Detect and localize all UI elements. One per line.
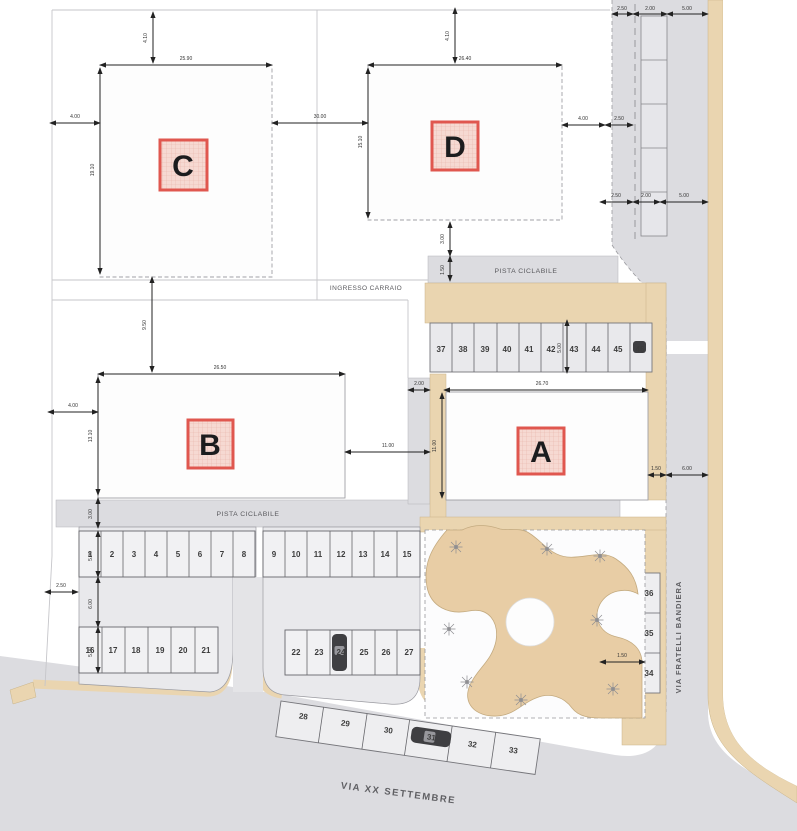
parking-stall-number: 19 bbox=[156, 646, 165, 655]
dimension-label: 3.00 bbox=[440, 234, 446, 244]
dimension-label: 4.10 bbox=[143, 33, 149, 43]
dimension-label: 2.00 bbox=[645, 6, 655, 12]
parking-stall-number: 30 bbox=[383, 725, 394, 735]
parking-row-1-8 bbox=[79, 531, 255, 577]
parking-stall-number: 22 bbox=[292, 648, 301, 657]
parking-stall-number: 15 bbox=[403, 550, 412, 559]
dimension-label: 26.70 bbox=[536, 381, 549, 387]
bike-path-label-north: PISTA CICLABILE bbox=[495, 268, 558, 275]
building-a-label: A bbox=[530, 436, 552, 469]
parking-stall-number: 11 bbox=[314, 550, 323, 559]
dimension-label: 1.50 bbox=[440, 265, 446, 275]
dimension-label: 2.00 bbox=[414, 381, 424, 387]
dimension-label: 4.10 bbox=[445, 31, 451, 41]
parking-stall-number: 36 bbox=[645, 589, 654, 598]
dimension-label: 13.10 bbox=[88, 430, 94, 443]
dimension-label: 2.50 bbox=[56, 583, 66, 589]
parking-stall-number: 8 bbox=[242, 550, 247, 559]
parking-stall-number: 24 bbox=[337, 648, 346, 657]
parking-stall-number: 41 bbox=[525, 345, 534, 354]
parking-stall-number: 31 bbox=[426, 732, 437, 742]
dimension-label: 5.00 bbox=[682, 6, 692, 12]
dimension-label: 11.00 bbox=[432, 440, 438, 452]
dimension-label: 5.00 bbox=[557, 343, 563, 353]
parking-stall-number: 45 bbox=[614, 345, 623, 354]
dimension-label: 9.50 bbox=[142, 320, 148, 330]
parking-stall-number: 23 bbox=[315, 648, 324, 657]
parking-stall-number: 9 bbox=[272, 550, 277, 559]
dimension-label: 6.00 bbox=[682, 466, 692, 472]
bike-path-label-south: PISTA CICLABILE bbox=[217, 511, 280, 518]
parking-stall-number: 35 bbox=[645, 629, 654, 638]
roadside-stalls bbox=[641, 16, 667, 236]
dimension-label: 25.90 bbox=[180, 56, 193, 62]
dimension-label: 26.40 bbox=[459, 56, 472, 62]
parking-stall-number: 12 bbox=[337, 550, 346, 559]
parking-stall-number: 27 bbox=[405, 648, 414, 657]
driveway-entrance-label: INGRESSO CARRAIO bbox=[330, 285, 402, 292]
parking-stall-number: 34 bbox=[645, 669, 654, 678]
parking-stall-number: 20 bbox=[179, 646, 188, 655]
parking-stall-number: 40 bbox=[503, 345, 512, 354]
parking-stall-number: 7 bbox=[220, 550, 225, 559]
playground bbox=[425, 525, 645, 718]
site-plan-drawing: C D B A 4.1025.904.0019.109.5030.004.102… bbox=[0, 0, 797, 831]
parking-stall-number: 21 bbox=[202, 646, 211, 655]
dimension-label: 2.50 bbox=[611, 193, 621, 199]
parking-stall-number: 26 bbox=[382, 648, 391, 657]
dimension-label: 2.50 bbox=[617, 6, 627, 12]
parking-stall-number: 17 bbox=[109, 646, 118, 655]
parking-row-22-27 bbox=[285, 630, 420, 675]
driveway-between-islands bbox=[233, 577, 263, 692]
dimension-label: 2.00 bbox=[641, 193, 651, 199]
parking-stall-number: 1 bbox=[88, 550, 93, 559]
parking-stall-number: 18 bbox=[132, 646, 141, 655]
building-b-label: B bbox=[199, 429, 221, 462]
bike-path-west-of-a bbox=[408, 378, 430, 504]
parking-stall-number: 5 bbox=[176, 550, 181, 559]
dimension-label: 15.10 bbox=[358, 136, 364, 149]
parking-stall-number: 3 bbox=[132, 550, 137, 559]
dimension-label: 6.00 bbox=[88, 599, 94, 609]
building-d-label: D bbox=[444, 131, 466, 164]
parking-stall-number: 33 bbox=[508, 745, 519, 755]
parking-row-16-21 bbox=[79, 627, 218, 673]
parking-stall-number: 38 bbox=[459, 345, 468, 354]
offplan-mask bbox=[723, 0, 797, 786]
parking-stall-number: 2 bbox=[110, 550, 115, 559]
parking-stall-number: 10 bbox=[292, 550, 301, 559]
parking-stall-number: 28 bbox=[298, 711, 309, 721]
parking-stall-number: 39 bbox=[481, 345, 490, 354]
path-above-row-37-46 bbox=[425, 283, 666, 323]
parking-stall-number: 29 bbox=[340, 718, 351, 728]
dimension-label: 3.00 bbox=[88, 509, 94, 519]
parking-stall-number: 13 bbox=[359, 550, 368, 559]
building-c-label: C bbox=[172, 150, 194, 183]
street-label-via-fratelli-bandiera: VIA FRATELLI BANDIERA bbox=[674, 581, 683, 694]
dimension-label: 2.50 bbox=[614, 116, 624, 122]
parking-stall-number: 44 bbox=[592, 345, 601, 354]
parking-stall-number: 32 bbox=[467, 739, 478, 749]
parking-stall-number: 43 bbox=[570, 345, 579, 354]
parking-stall-number: 4 bbox=[154, 550, 159, 559]
dimension-label: 4.00 bbox=[68, 403, 78, 409]
dimension-label: 4.00 bbox=[578, 116, 588, 122]
playground-center-circle bbox=[506, 598, 554, 646]
dimension-label: 5.00 bbox=[679, 193, 689, 199]
dimension-label: 19.10 bbox=[90, 164, 96, 177]
parking-stall-number: 42 bbox=[547, 345, 556, 354]
parking-stall-number: 46 bbox=[636, 345, 645, 354]
parking-stall-number: 25 bbox=[360, 648, 369, 657]
dimension-label: 4.00 bbox=[70, 114, 80, 120]
dimension-label: 11.00 bbox=[382, 443, 394, 449]
parking-stall-number: 37 bbox=[437, 345, 446, 354]
parking-stall-number: 6 bbox=[198, 550, 203, 559]
parking-stall-number: 16 bbox=[86, 646, 95, 655]
crosswalk bbox=[667, 341, 708, 354]
dimension-label: 1.50 bbox=[617, 653, 627, 659]
dimension-label: 26.50 bbox=[214, 365, 227, 371]
dimension-label: 30.00 bbox=[314, 114, 327, 120]
site-plan: C D B A 4.1025.904.0019.109.5030.004.102… bbox=[0, 0, 797, 831]
parking-stall-number: 14 bbox=[381, 550, 390, 559]
dimension-label: 1.50 bbox=[651, 466, 661, 472]
